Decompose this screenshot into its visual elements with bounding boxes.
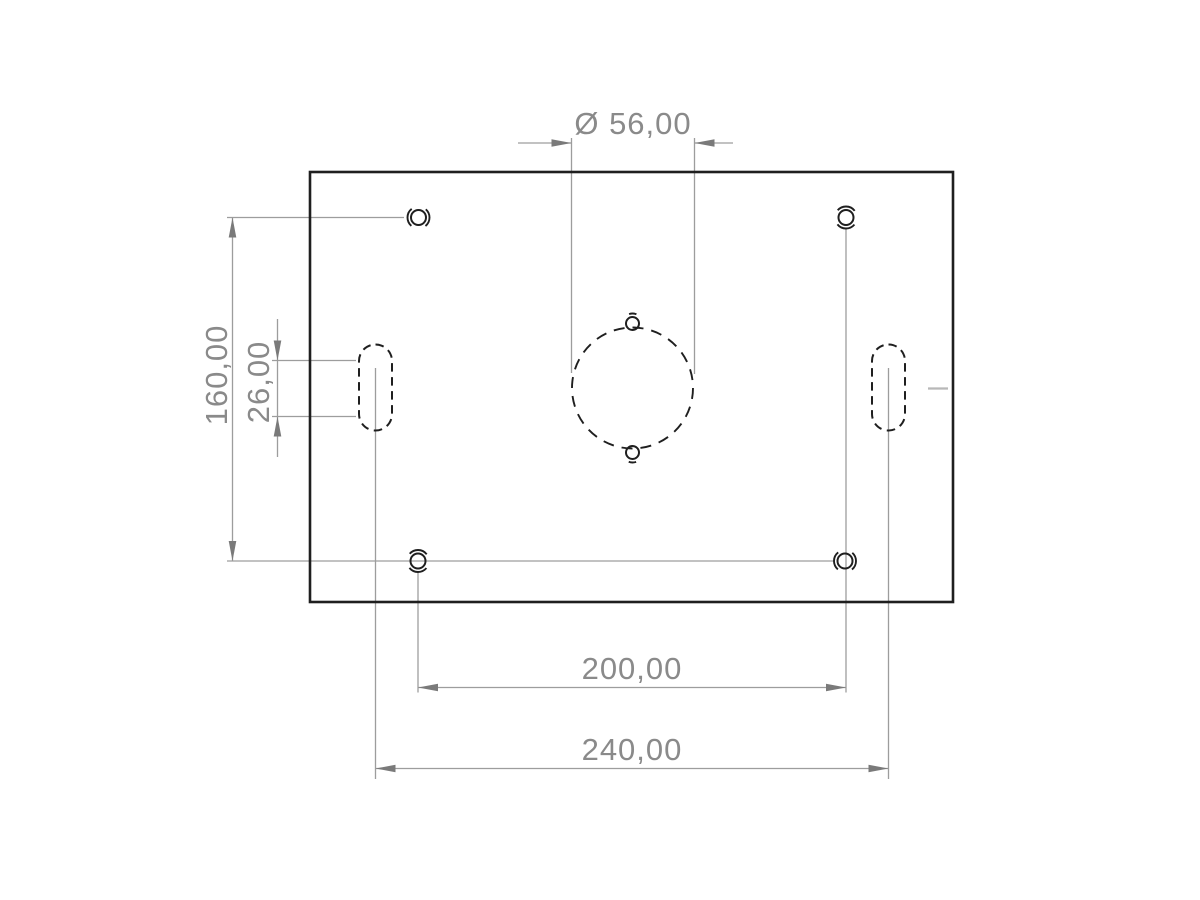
hole-circle [626, 446, 639, 459]
arrowhead [826, 684, 846, 692]
hole-top-left [408, 207, 430, 229]
hole-circle [838, 554, 853, 569]
dim-slot-length: 26,00 [241, 319, 356, 457]
hole-circle [411, 210, 426, 225]
arrowhead [695, 139, 715, 147]
dim-vertical-spacing-label: 160,00 [199, 325, 234, 426]
hole-top-right [835, 207, 857, 229]
plate-outline [310, 172, 953, 602]
drawing-canvas: Ø 56,00 160,00 26,00 200,00 240,00 [0, 0, 1200, 900]
dim-slot-length-label: 26,00 [241, 341, 276, 424]
hole-circle [839, 210, 854, 225]
arrowhead [376, 765, 396, 773]
dim-diameter-label: Ø 56,00 [574, 106, 691, 141]
center-top-hole [623, 314, 643, 334]
hole-circle [626, 317, 639, 330]
arrowhead [229, 218, 237, 238]
dim-vertical-spacing: 160,00 [199, 218, 834, 562]
arrowhead [552, 139, 572, 147]
dim-diameter: Ø 56,00 [518, 106, 733, 374]
center-circle-dashed [572, 328, 693, 449]
arrowhead [229, 541, 237, 561]
technical-drawing: Ø 56,00 160,00 26,00 200,00 240,00 [0, 0, 1200, 900]
arrowhead [869, 765, 889, 773]
dim-slot-spacing: 240,00 [376, 368, 889, 779]
dim-hole-spacing: 200,00 [418, 229, 846, 693]
hole-bottom-right [834, 550, 856, 572]
center-bottom-hole [623, 443, 643, 463]
dim-hole-spacing-label: 200,00 [582, 651, 683, 686]
arrowhead [418, 684, 438, 692]
dim-slot-spacing-label: 240,00 [582, 732, 683, 767]
